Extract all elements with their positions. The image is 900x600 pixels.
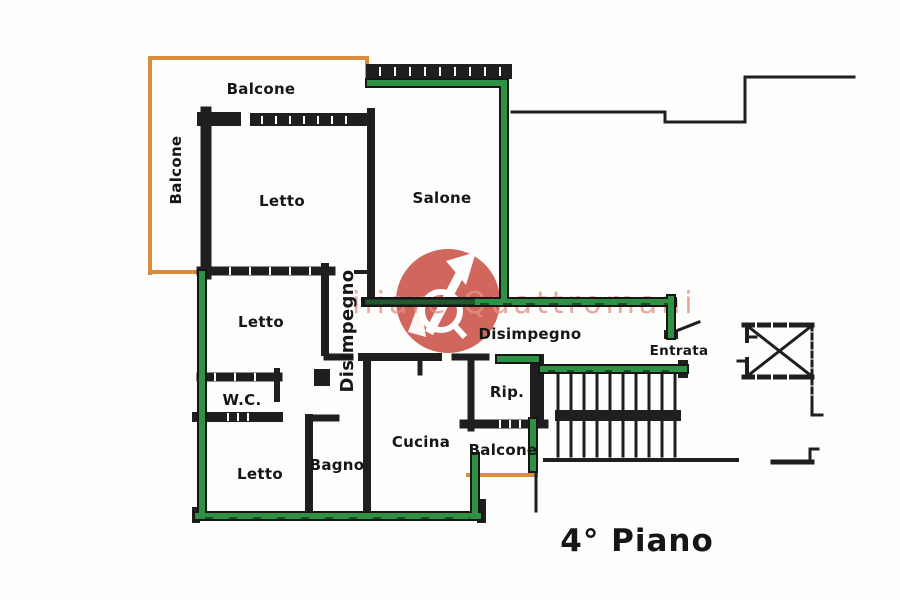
floor-plan-page: iliare Quattromani [0,0,900,600]
room-label-balcone-top: Balcone [227,80,296,98]
building-outline-line [512,77,854,122]
room-label-letto-3: Letto [237,465,283,483]
staircase [545,360,737,460]
room-label-balcone-left: Balcone [167,136,185,205]
elevator-shaft [738,322,822,415]
room-label-bagno: Bagno [310,456,365,474]
floor-plan-drawing: iliare Quattromani [0,0,900,600]
room-label-letto-2: Letto [238,313,284,331]
room-label-salone: Salone [412,189,471,207]
room-label-entrata: Entrata [650,343,709,359]
floor-title: 4° Piano [560,523,714,559]
room-label-wc: W.C. [223,391,262,409]
room-label-letto-1: Letto [259,192,305,210]
room-label-rip: Rip. [490,383,524,401]
room-label-disimpegno-horizontal: Disimpegno [479,325,582,343]
dashed-boundary-fragments [700,449,818,462]
room-label-balcone-bottom: Balcone [469,441,538,459]
room-label-cucina: Cucina [392,433,450,451]
room-label-disimpegno-vertical: Disimpegno [337,270,358,393]
